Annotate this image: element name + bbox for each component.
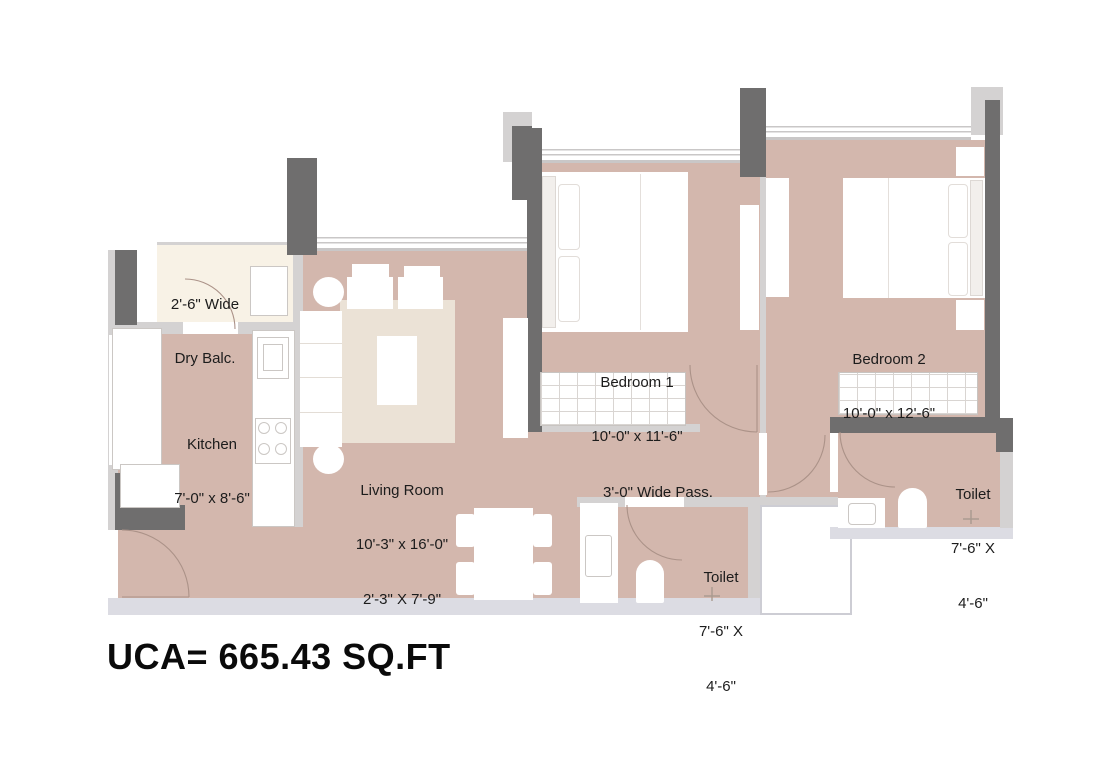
label-line: Kitchen bbox=[147, 436, 277, 454]
floor-plan: 2'-6" Wide Dry Balc. Kitchen 7'-0" x 8'-… bbox=[0, 0, 1100, 778]
label-line: 10'-3" x 16'-0" bbox=[327, 536, 477, 554]
label-line: 7'-6" X bbox=[661, 623, 781, 641]
label-living-room: Living Room 10'-3" x 16'-0" 2'-3" X 7'-9… bbox=[327, 445, 477, 646]
label-kitchen: Kitchen 7'-0" x 8'-6" bbox=[147, 399, 277, 545]
label-line: 7'-6" X bbox=[913, 540, 1033, 558]
label-line: Living Room bbox=[327, 482, 477, 500]
label-dry-balcony: 2'-6" Wide Dry Balc. bbox=[140, 259, 270, 405]
label-line: 4'-6" bbox=[661, 678, 781, 696]
label-line: 2'-6" Wide bbox=[140, 296, 270, 314]
label-passage: 3'-0" Wide Pass. bbox=[583, 447, 733, 538]
label-line: Bedroom 1 bbox=[562, 374, 712, 392]
label-line: 4'-6" bbox=[913, 595, 1033, 613]
uca-area-text: UCA= 665.43 SQ.FT bbox=[107, 636, 451, 678]
label-line: 7'-0" x 8'-6" bbox=[147, 490, 277, 508]
label-line: 2'-3" X 7'-9" bbox=[327, 591, 477, 609]
label-line: 3'-0" Wide Pass. bbox=[583, 484, 733, 502]
label-line: Dry Balc. bbox=[140, 350, 270, 368]
label-line: 10'-0" x 11'-6" bbox=[562, 428, 712, 446]
label-line: 10'-0" x 12'-6" bbox=[814, 405, 964, 423]
label-toilet-mid: Toilet 7'-6" X 4'-6" bbox=[661, 532, 781, 733]
label-bedroom2: Bedroom 2 10'-0" x 12'-6" bbox=[814, 314, 964, 460]
label-line: Bedroom 2 bbox=[814, 351, 964, 369]
label-line: Toilet bbox=[661, 569, 781, 587]
label-line: Toilet bbox=[913, 486, 1033, 504]
label-toilet-right: Toilet 7'-6" X 4'-6" bbox=[913, 449, 1033, 650]
